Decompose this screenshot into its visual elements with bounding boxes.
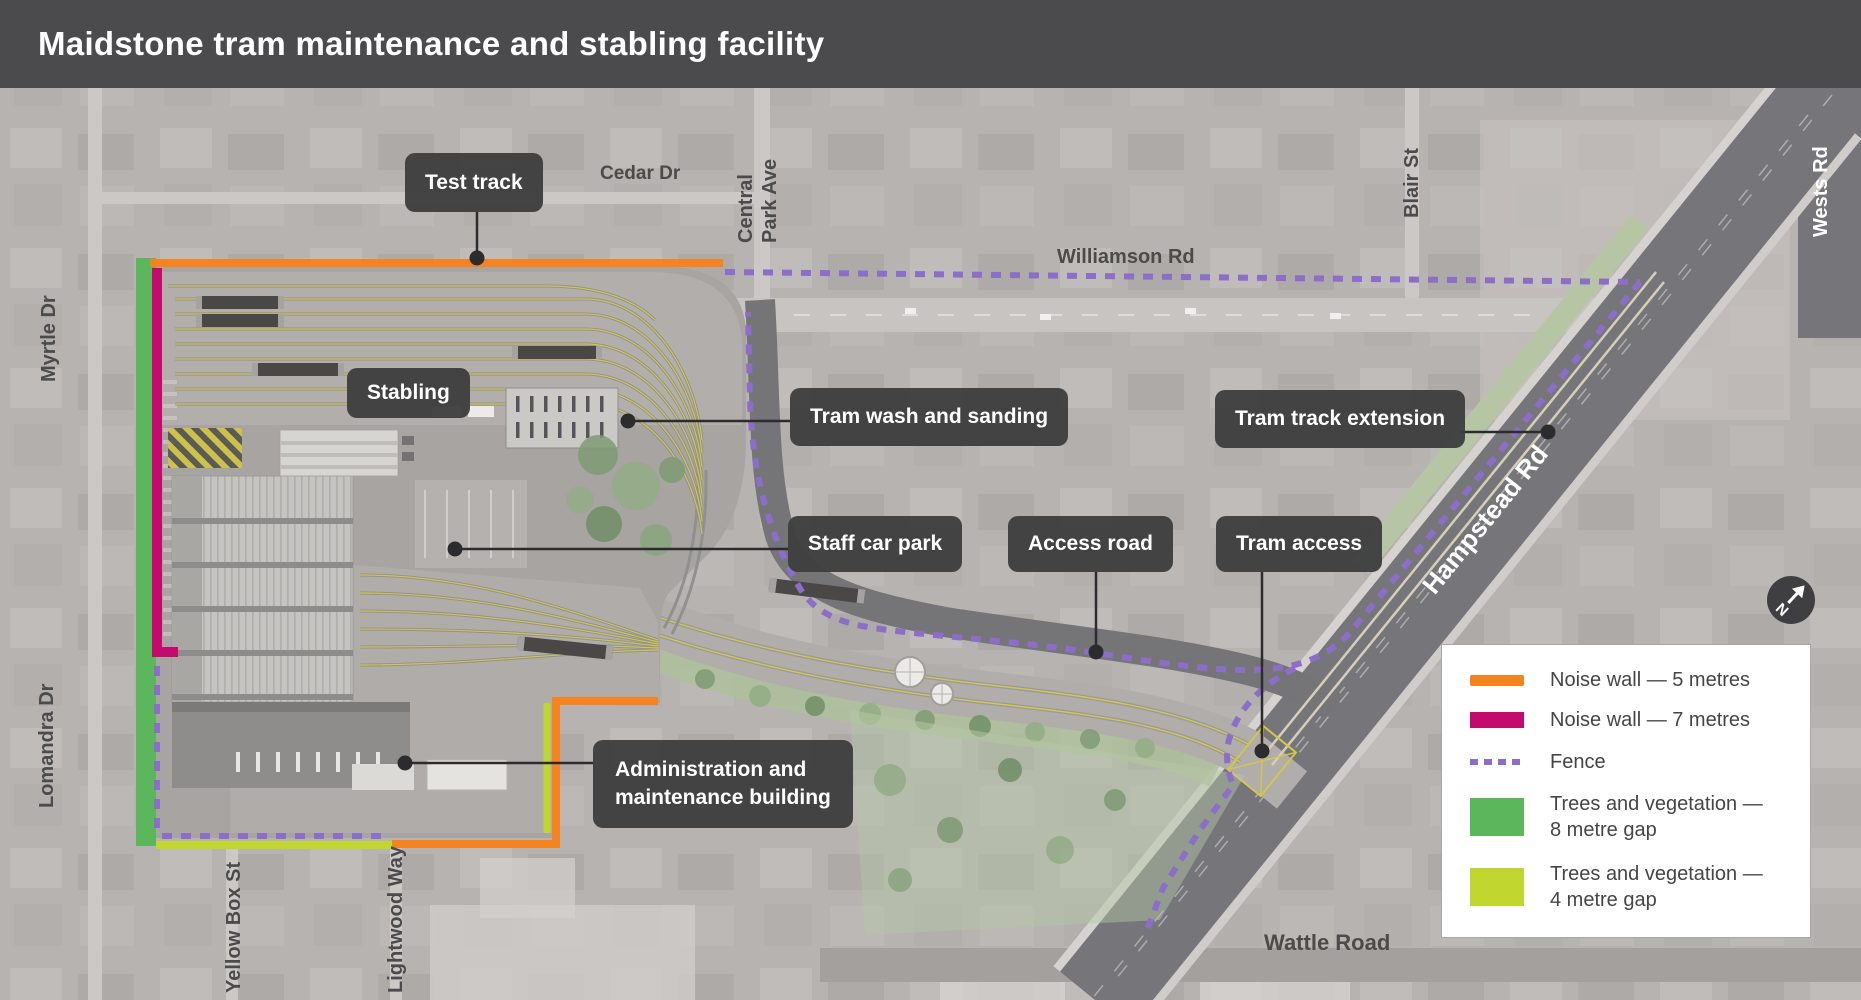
trees-4m-swatch: [1470, 868, 1524, 906]
callout-tram-track-extension: Tram track extension: [1215, 390, 1465, 448]
fence-swatch: [1470, 759, 1524, 765]
road-label-wattle: Wattle Road: [1264, 930, 1390, 955]
callout-tram-wash: Tram wash and sanding: [790, 388, 1068, 446]
legend-item-trees-4m: Trees and vegetation — 4 metre gap: [1470, 861, 1763, 913]
hatched-area: [168, 428, 242, 468]
legend-item-noise-wall-7m: Noise wall — 7 metres: [1470, 707, 1750, 733]
legend-item-trees-8m: Trees and vegetation — 8 metre gap: [1470, 791, 1763, 843]
workshop-building: [280, 430, 414, 476]
road-label-cedar: Cedar Dr: [600, 163, 681, 184]
road-label-central-park-2: Park Ave: [759, 159, 781, 243]
road-label-central-park-1: Central: [735, 174, 757, 243]
title-bar: Maidstone tram maintenance and stabling …: [0, 0, 1861, 88]
callout-staff-car-park: Staff car park: [788, 516, 962, 572]
road-label-yellow-box: Yellow Box St: [223, 862, 245, 993]
callout-test-track: Test track: [405, 153, 543, 212]
noise-wall-5m-swatch: [1470, 675, 1524, 686]
callout-stabling: Stabling: [347, 368, 470, 418]
road-label-myrtle: Myrtle Dr: [38, 295, 60, 382]
page-title: Maidstone tram maintenance and stabling …: [38, 25, 824, 63]
screenshot: Maidstone tram maintenance and stabling …: [0, 0, 1861, 1000]
trees-8m-swatch: [1470, 798, 1524, 836]
williamson-road: [640, 298, 1660, 332]
road-label-blair: Blair St: [1401, 148, 1423, 218]
callout-tram-access: Tram access: [1216, 516, 1382, 572]
legend: Noise wall — 5 metres Noise wall — 7 met…: [1441, 644, 1811, 938]
road-label-wests: Wests Rd: [1810, 146, 1832, 237]
legend-item-fence: Fence: [1470, 749, 1606, 775]
road-label-lightwood: Lightwood Way: [385, 845, 407, 993]
shed: [427, 760, 507, 790]
legend-item-noise-wall-5m: Noise wall — 5 metres: [1470, 667, 1750, 693]
road-label-williamson: Williamson Rd: [1057, 246, 1195, 268]
north-arrow-icon: N: [1767, 576, 1815, 624]
callout-access-road: Access road: [1008, 516, 1173, 572]
road-label-lomandra: Lomandra Dr: [36, 683, 58, 808]
callout-admin-building: Administration and maintenance building: [593, 740, 853, 828]
noise-wall-7m-swatch: [1470, 712, 1524, 728]
